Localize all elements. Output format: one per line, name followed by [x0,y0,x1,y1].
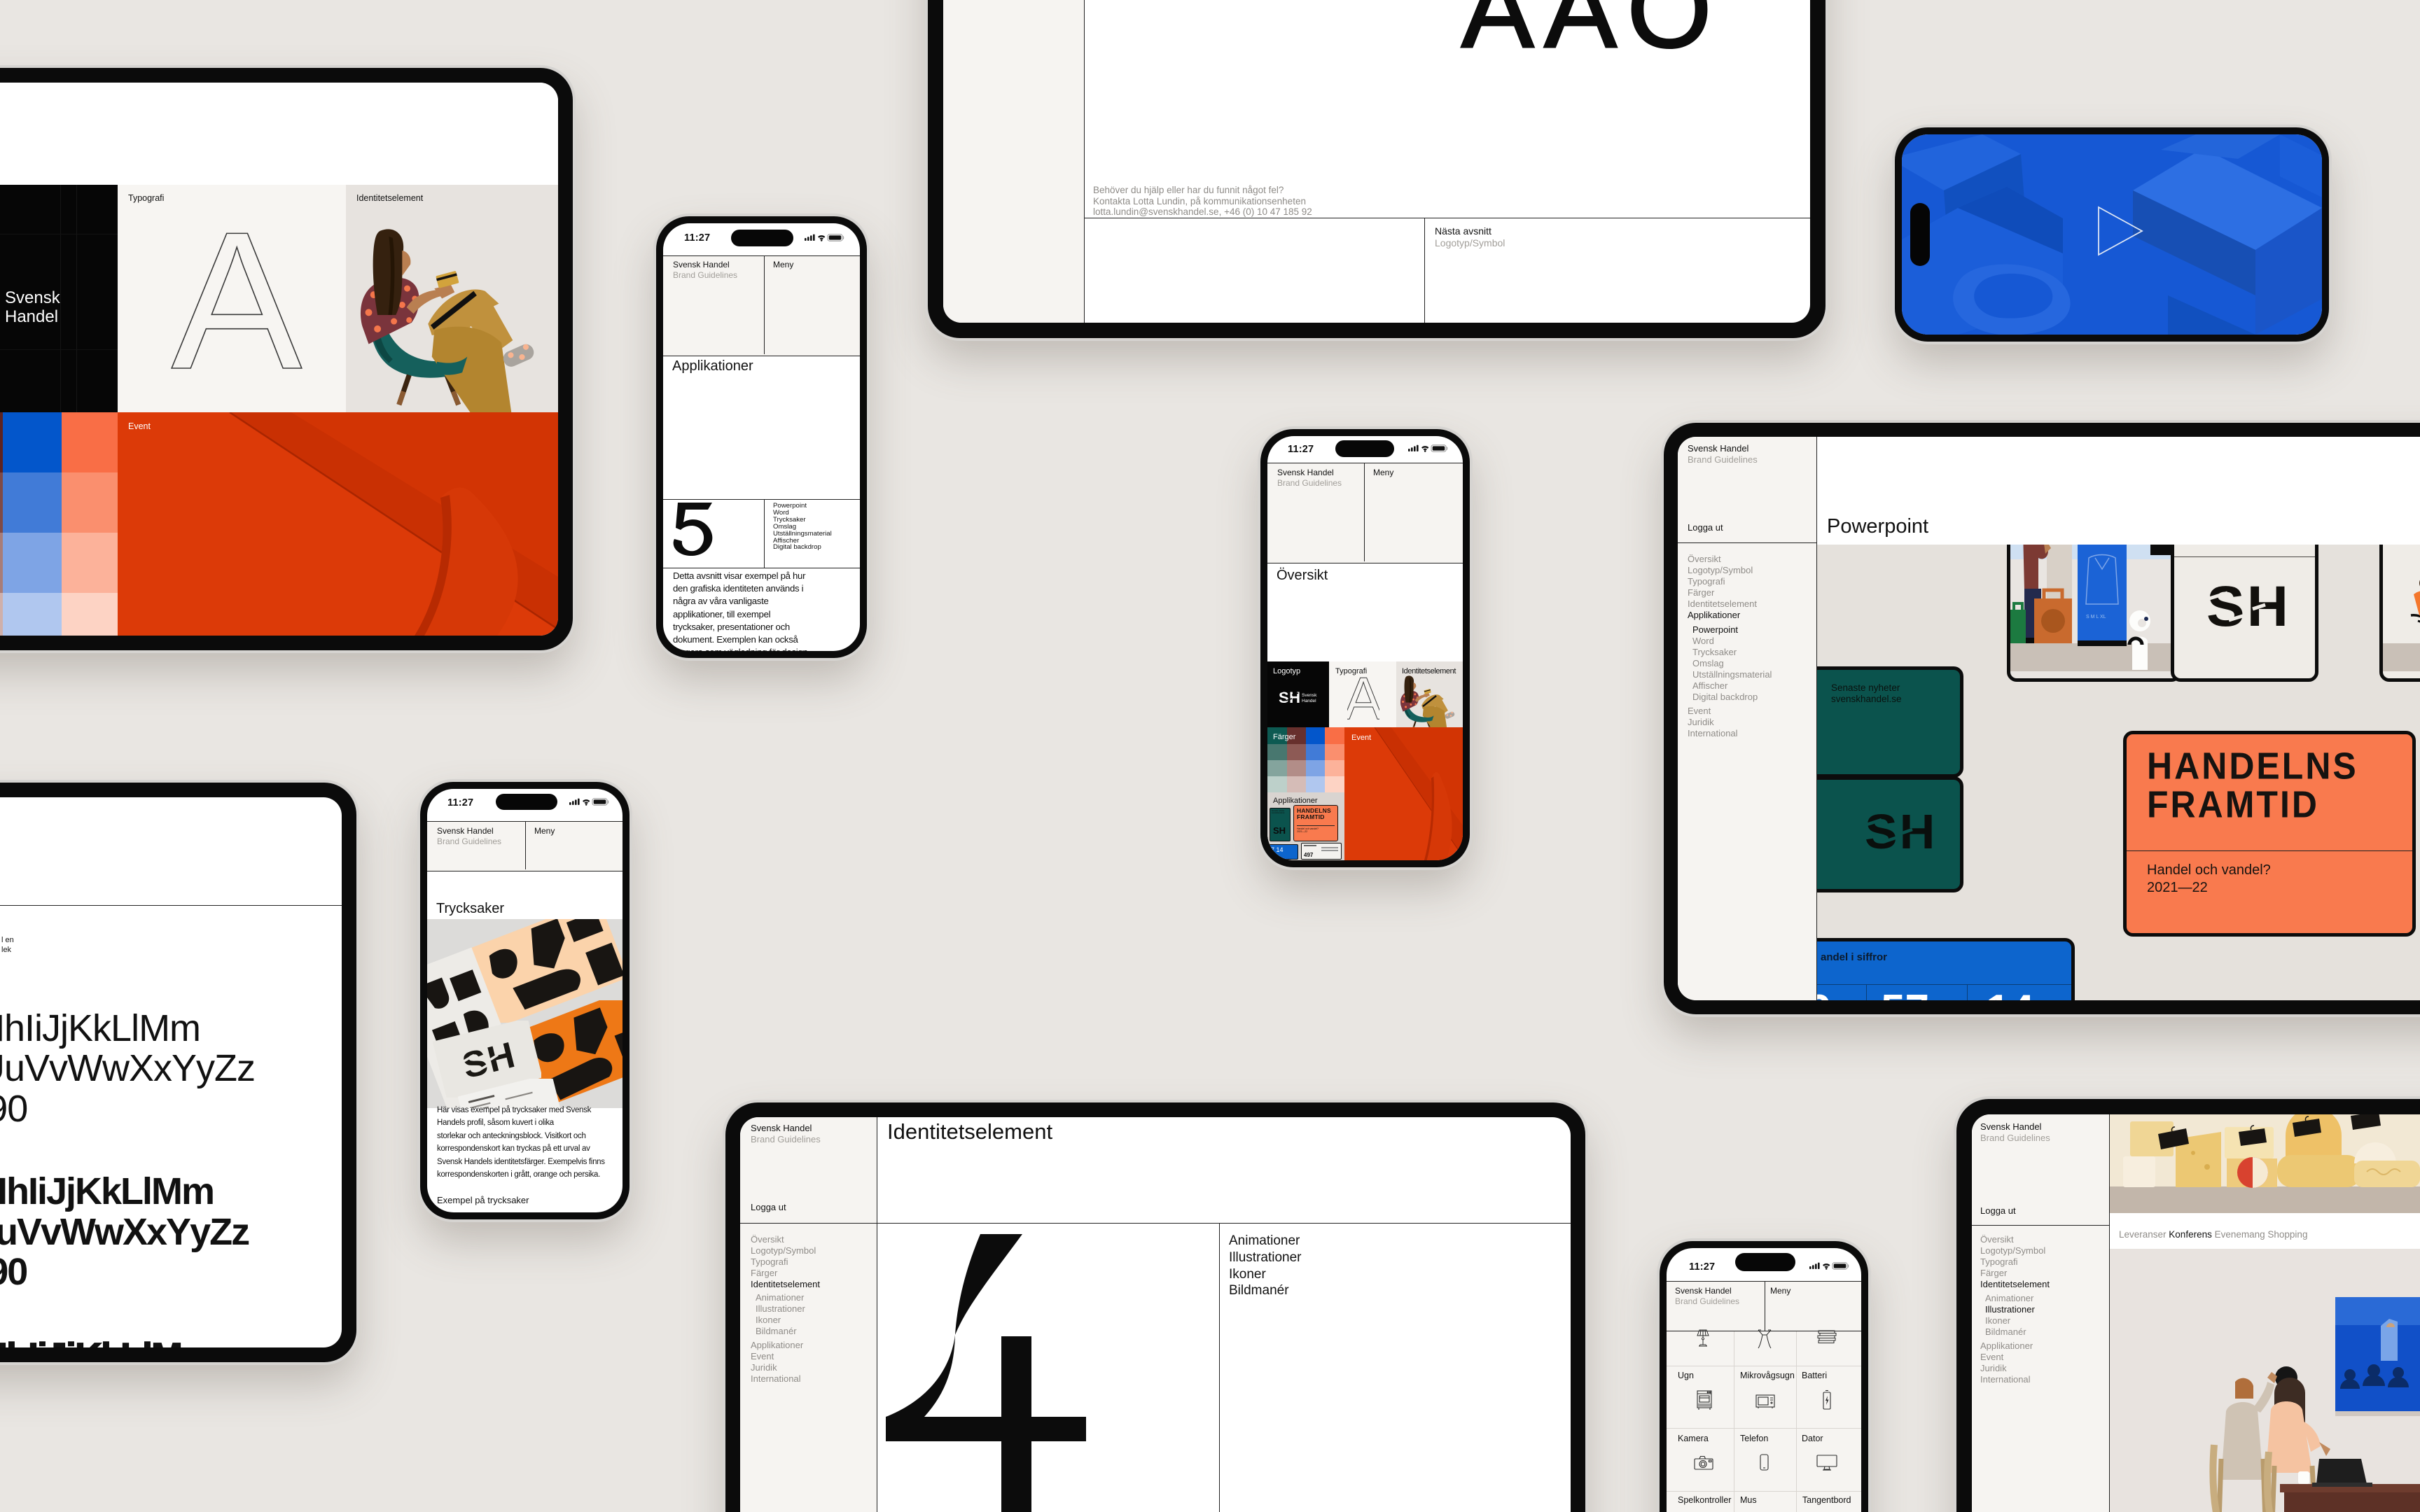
svg-text:A: A [1347,675,1379,720]
svg-text:S M L XL: S M L XL [2086,615,2106,619]
svg-text:Handel: Handel [1302,699,1316,703]
svg-text:SH: SH [1865,813,1937,855]
svg-text:Svensk: Svensk [1302,693,1317,698]
svg-text:A: A [172,223,303,374]
svg-text:SH: SH [2206,584,2290,634]
